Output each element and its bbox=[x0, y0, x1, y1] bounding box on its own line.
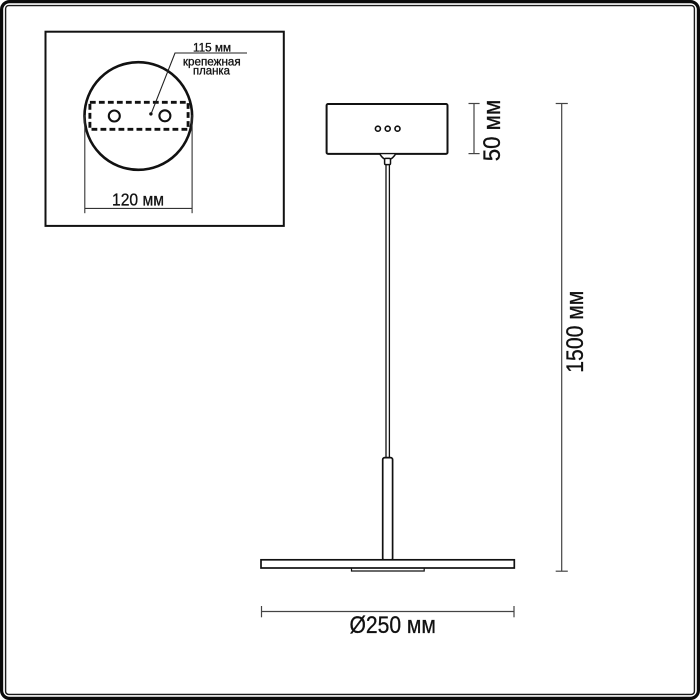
svg-text:50 мм: 50 мм bbox=[479, 100, 506, 162]
svg-text:115 мм: 115 мм bbox=[193, 41, 231, 54]
svg-text:1500 мм: 1500 мм bbox=[562, 291, 589, 373]
svg-text:планка: планка bbox=[193, 64, 231, 77]
svg-text:120 мм: 120 мм bbox=[112, 189, 164, 209]
svg-text:Ø250 мм: Ø250 мм bbox=[349, 612, 436, 639]
